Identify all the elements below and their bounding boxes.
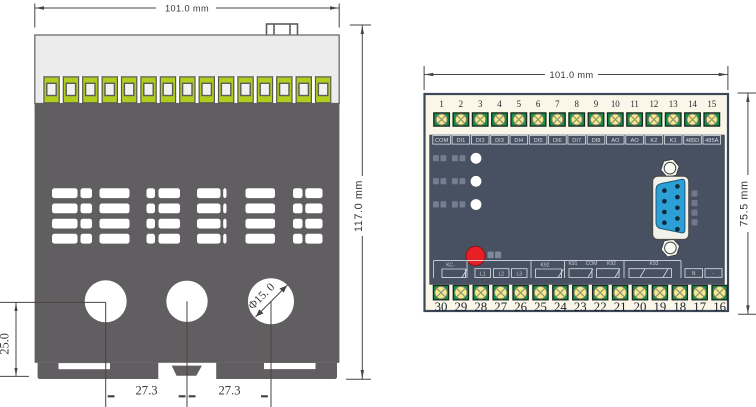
svg-text:6: 6 — [536, 99, 541, 109]
svg-text:K93: K93 — [650, 261, 659, 267]
svg-text:13: 13 — [669, 99, 678, 109]
svg-text:485D: 485D — [686, 138, 700, 144]
svg-text:DI8: DI8 — [592, 138, 601, 144]
svg-text:27.3: 27.3 — [218, 383, 240, 397]
svg-text:19: 19 — [654, 300, 667, 314]
svg-text:3: 3 — [478, 99, 483, 109]
svg-text:21: 21 — [614, 300, 627, 314]
svg-text:K91: K91 — [569, 261, 578, 267]
svg-text:DI7: DI7 — [572, 138, 581, 144]
svg-text:DI3: DI3 — [495, 138, 504, 144]
svg-text:2: 2 — [459, 99, 463, 109]
svg-text:17: 17 — [693, 300, 706, 314]
svg-text:30: 30 — [435, 300, 448, 314]
svg-text:28: 28 — [474, 300, 487, 314]
svg-text:20: 20 — [634, 300, 647, 314]
svg-text:16: 16 — [713, 300, 726, 314]
svg-text:23: 23 — [574, 300, 587, 314]
svg-text:KC-: KC- — [446, 262, 455, 268]
svg-text:COM: COM — [586, 261, 598, 267]
svg-text:27: 27 — [494, 300, 507, 314]
svg-text:101.0 mm: 101.0 mm — [549, 70, 593, 80]
svg-text:27.3: 27.3 — [135, 383, 157, 397]
svg-text:DI4: DI4 — [514, 138, 523, 144]
svg-text:117.0 mm: 117.0 mm — [353, 180, 365, 232]
svg-text:N: N — [692, 271, 696, 277]
svg-text:DI5: DI5 — [534, 138, 543, 144]
svg-text:DI1: DI1 — [456, 138, 465, 144]
svg-text:11: 11 — [630, 99, 639, 109]
svg-text:485A: 485A — [705, 138, 718, 144]
svg-text:AO: AO — [630, 138, 639, 144]
svg-text:9: 9 — [594, 99, 599, 109]
svg-text:K92: K92 — [607, 261, 616, 267]
svg-text:DI6: DI6 — [553, 138, 562, 144]
svg-text:24: 24 — [554, 300, 567, 314]
svg-text:DI2: DI2 — [476, 138, 485, 144]
svg-text:L3: L3 — [517, 271, 523, 277]
svg-text:5: 5 — [517, 99, 522, 109]
svg-text:15: 15 — [707, 99, 716, 109]
svg-text:29: 29 — [455, 300, 468, 314]
svg-text:K1: K1 — [670, 138, 677, 144]
svg-text:18: 18 — [673, 300, 686, 314]
svg-text:4: 4 — [497, 99, 502, 109]
svg-text:101.0 mm: 101.0 mm — [165, 4, 209, 14]
svg-text:L2: L2 — [499, 271, 505, 277]
svg-text:L1: L1 — [480, 271, 486, 277]
svg-text:14: 14 — [688, 99, 697, 109]
svg-text:8: 8 — [574, 99, 579, 109]
svg-text:25.0: 25.0 — [0, 333, 11, 355]
svg-text:1: 1 — [439, 99, 443, 109]
svg-text:AO: AO — [611, 138, 620, 144]
svg-text:10: 10 — [611, 99, 620, 109]
svg-text:12: 12 — [649, 99, 658, 109]
svg-text:7: 7 — [555, 99, 560, 109]
svg-text:26: 26 — [514, 300, 527, 314]
svg-text:COM: COM — [435, 138, 449, 144]
svg-text:75.5 mm: 75.5 mm — [739, 180, 751, 226]
svg-text:25: 25 — [534, 300, 547, 314]
svg-text:K2: K2 — [650, 138, 657, 144]
svg-text:22: 22 — [594, 300, 607, 314]
svg-text:K92: K92 — [541, 262, 550, 268]
